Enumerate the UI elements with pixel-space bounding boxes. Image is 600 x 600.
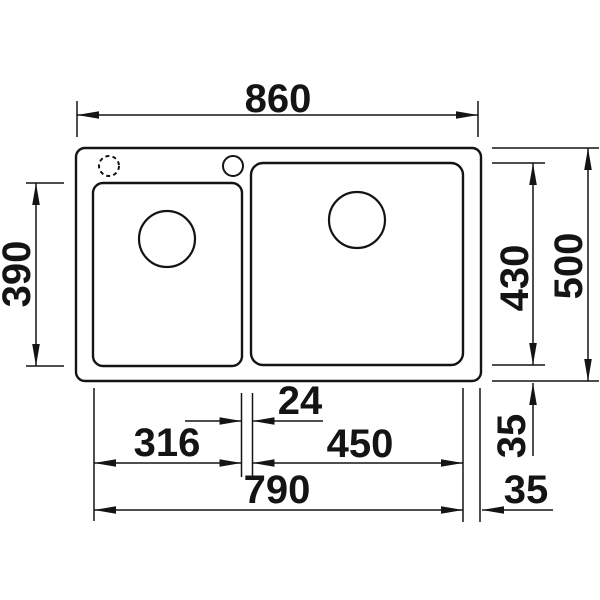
arrow-left-icon	[94, 506, 116, 514]
dim-label-35-front: 35	[490, 414, 534, 459]
dim-left-bowl-depth: 390	[0, 183, 64, 366]
dim-label-500: 500	[547, 233, 591, 300]
faucet-hole-optional-icon	[99, 156, 119, 176]
dim-bowls-outer-width: 790	[94, 468, 463, 514]
arrow-right-icon	[441, 506, 463, 514]
arrow-left-icon	[253, 417, 275, 425]
arrow-right-icon	[220, 459, 242, 467]
dim-right-rim: 35	[482, 468, 553, 514]
drawing-canvas: 860 390 430 500	[0, 0, 600, 600]
left-drain-icon	[139, 211, 195, 267]
dim-label-35-right: 35	[504, 468, 549, 512]
dim-label-790: 790	[244, 468, 311, 512]
sink-technical-drawing: 860 390 430 500	[0, 0, 600, 600]
dim-right-bowl-width: 450	[253, 422, 464, 467]
arrow-left-icon	[482, 506, 504, 514]
arrow-right-icon	[441, 459, 463, 467]
dim-overall-width: 860	[77, 77, 478, 137]
arrow-right-icon	[456, 111, 478, 119]
dim-label-430: 430	[493, 245, 537, 312]
arrow-left-icon	[253, 459, 275, 467]
arrow-down-icon	[32, 344, 40, 366]
arrow-up-icon	[32, 183, 40, 205]
dim-label-316: 316	[134, 421, 201, 465]
arrow-down-icon	[584, 359, 592, 381]
arrow-up-icon	[584, 148, 592, 170]
arrow-left-icon	[77, 111, 99, 119]
faucet-hole-icon	[223, 156, 243, 176]
right-drain-icon	[329, 192, 385, 248]
dim-divider-width: 24	[185, 379, 323, 425]
dim-front-rim: 35	[490, 383, 537, 458]
sink-body	[76, 148, 481, 381]
dim-label-860: 860	[245, 77, 312, 121]
dim-left-bowl-width: 316	[94, 421, 242, 467]
arrow-left-icon	[94, 459, 116, 467]
dim-label-390: 390	[0, 241, 39, 308]
arrow-right-icon	[220, 417, 242, 425]
arrow-up-icon	[529, 383, 537, 405]
dim-label-450: 450	[327, 422, 394, 466]
dim-label-24: 24	[278, 379, 323, 423]
arrow-down-icon	[529, 343, 537, 365]
dim-right-bowl-depth: 430	[492, 163, 545, 365]
arrow-up-icon	[529, 163, 537, 185]
right-bowl	[251, 163, 463, 365]
